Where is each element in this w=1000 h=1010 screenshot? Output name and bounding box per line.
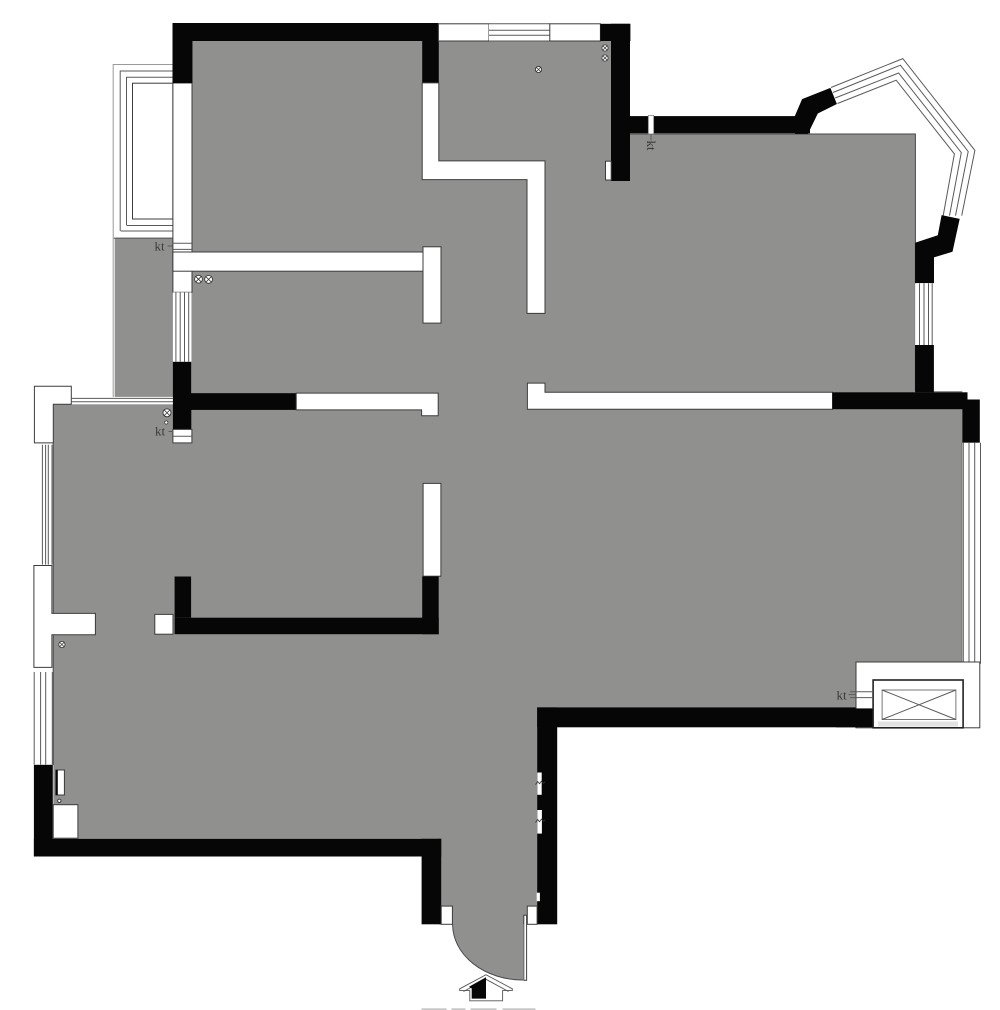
svg-text:kt: kt <box>155 424 166 439</box>
svg-text:kt: kt <box>644 141 659 152</box>
svg-text:kt: kt <box>837 688 848 703</box>
svg-text:kt: kt <box>155 239 166 254</box>
